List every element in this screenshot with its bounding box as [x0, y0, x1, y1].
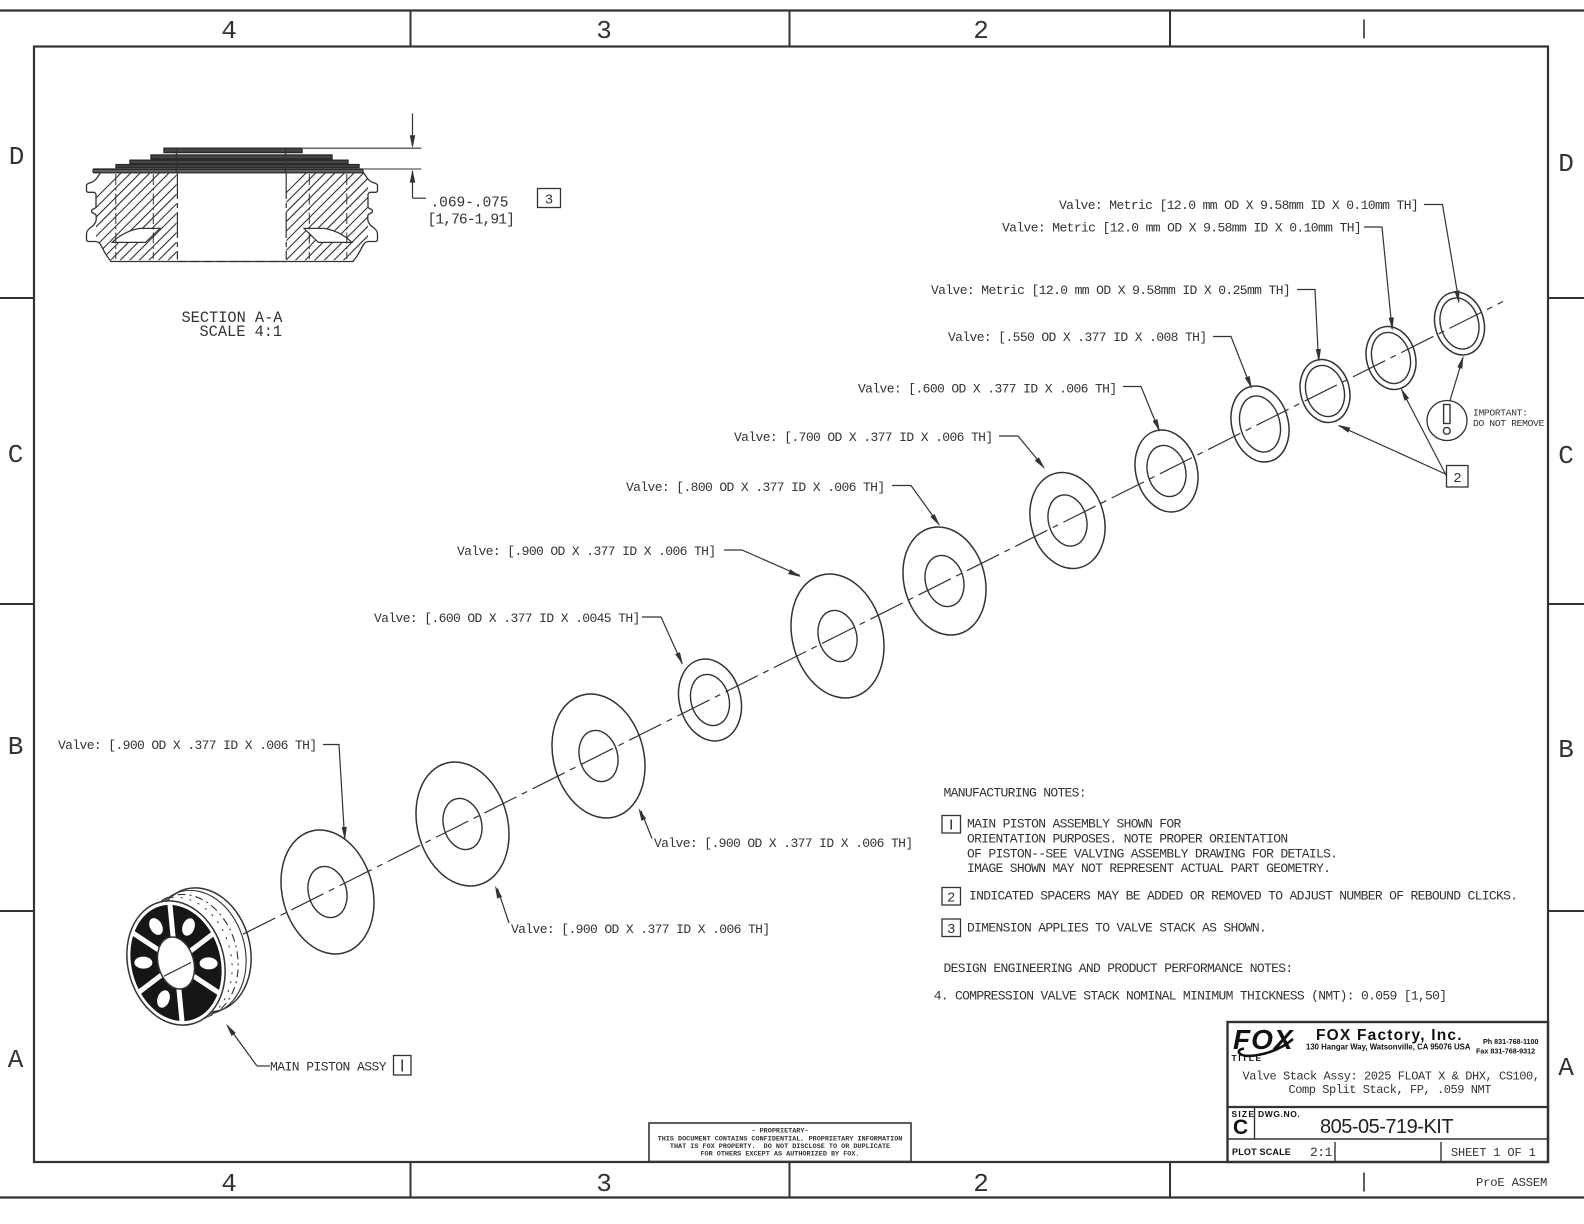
svg-text:Valve: Metric [12.0 mm OD X 9.: Valve: Metric [12.0 mm OD X 9.58mm ID X … — [1059, 198, 1418, 213]
svg-text:3: 3 — [596, 1169, 612, 1199]
svg-text:B: B — [1558, 735, 1574, 765]
svg-text:2: 2 — [1453, 471, 1461, 487]
svg-text:MANUFACTURING NOTES:: MANUFACTURING NOTES: — [944, 786, 1086, 801]
svg-text:.069-.075: .069-.075 — [431, 196, 509, 212]
svg-text:C: C — [1233, 1116, 1248, 1139]
svg-text:Ph 831-768-1100: Ph 831-768-1100 — [1483, 1037, 1539, 1046]
svg-text:Valve: [.900 OD X .377 ID X .0: Valve: [.900 OD X .377 ID X .006 TH] — [457, 544, 716, 559]
svg-text:DIMENSION APPLIES TO VALVE STA: DIMENSION APPLIES TO VALVE STACK AS SHOW… — [967, 921, 1266, 936]
svg-text:2: 2 — [973, 16, 989, 46]
svg-text:Valve: [.900 OD X .377 ID X .0: Valve: [.900 OD X .377 ID X .006 TH] — [654, 836, 913, 851]
svg-text:3: 3 — [947, 922, 955, 938]
svg-text:- PROPRIETARY-: - PROPRIETARY- — [751, 1128, 808, 1136]
svg-text:ProE ASSEM: ProE ASSEM — [1476, 1176, 1547, 1190]
svg-text:Valve: [.600 OD X .377 ID X .0: Valve: [.600 OD X .377 ID X .006 TH] — [858, 382, 1117, 397]
svg-text:INDICATED SPACERS MAY BE ADDED: INDICATED SPACERS MAY BE ADDED OR REMOVE… — [969, 889, 1517, 904]
svg-text:Valve: [.900 OD X .377 ID X .0: Valve: [.900 OD X .377 ID X .006 TH] — [511, 922, 770, 937]
svg-text:Valve: [.800 OD X .377 ID X .0: Valve: [.800 OD X .377 ID X .006 TH] — [626, 480, 885, 495]
svg-text:2: 2 — [947, 891, 955, 907]
svg-text:B: B — [8, 732, 24, 762]
svg-text:Valve: [.550 OD X .377 ID X .0: Valve: [.550 OD X .377 ID X .008 TH] — [948, 330, 1207, 345]
svg-text:MAIN PISTON ASSY: MAIN PISTON ASSY — [270, 1060, 387, 1075]
svg-text:FOX Factory, Inc.: FOX Factory, Inc. — [1316, 1027, 1463, 1044]
svg-text:SHEET 1 OF 1: SHEET 1 OF 1 — [1451, 1146, 1536, 1160]
svg-text:MAIN PISTON ASSEMBLY SHOWN FOR: MAIN PISTON ASSEMBLY SHOWN FOR — [967, 817, 1182, 832]
svg-text:805-05-719-KIT: 805-05-719-KIT — [1320, 1116, 1453, 1138]
svg-text:[1,76-1,91]: [1,76-1,91] — [428, 213, 514, 229]
svg-text:OF PISTON--SEE VALVING ASSEMBL: OF PISTON--SEE VALVING ASSEMBLY DRAWING … — [967, 847, 1337, 862]
svg-text:SCALE 4:1: SCALE 4:1 — [200, 323, 283, 341]
svg-text:TITLE: TITLE — [1232, 1053, 1263, 1063]
svg-text:3: 3 — [545, 193, 553, 209]
svg-text:DESIGN ENGINEERING AND PRODUCT: DESIGN ENGINEERING AND PRODUCT PERFORMAN… — [944, 961, 1293, 976]
svg-text:130 Hangar Way, Watsonville, C: 130 Hangar Way, Watsonville, CA 95076 US… — [1306, 1043, 1471, 1052]
svg-text:ORIENTATION PURPOSES. NOTE PRO: ORIENTATION PURPOSES. NOTE PROPER ORIENT… — [967, 832, 1287, 847]
svg-text:Valve Stack Assy: 2025 FLOAT X: Valve Stack Assy: 2025 FLOAT X & DHX, CS… — [1243, 1070, 1540, 1084]
svg-text:4: 4 — [221, 1169, 237, 1199]
svg-text:PLOT SCALE: PLOT SCALE — [1232, 1147, 1291, 1157]
svg-text:FOR OTHERS EXCEPT AS AUTHORIZE: FOR OTHERS EXCEPT AS AUTHORIZED BY FOX. — [700, 1151, 859, 1159]
svg-text:Valve: [.900 OD X .377 ID X .0: Valve: [.900 OD X .377 ID X .006 TH] — [58, 738, 317, 753]
svg-text:Valve: [.700 OD X .377 ID X .0: Valve: [.700 OD X .377 ID X .006 TH] — [734, 430, 993, 445]
svg-text:3: 3 — [596, 16, 612, 46]
svg-text:4: 4 — [221, 16, 237, 46]
svg-text:IMPORTANT:: IMPORTANT: — [1473, 408, 1528, 419]
svg-text:IMAGE SHOWN MAY NOT REPRESENT: IMAGE SHOWN MAY NOT REPRESENT ACTUAL PAR… — [967, 861, 1330, 876]
svg-text:Fax 831-768-9312: Fax 831-768-9312 — [1476, 1047, 1535, 1056]
svg-text:C: C — [8, 440, 24, 470]
svg-text:DWG.NO.: DWG.NO. — [1258, 1109, 1300, 1119]
svg-text:D: D — [1558, 149, 1574, 179]
svg-text:2:1: 2:1 — [1310, 1145, 1333, 1160]
svg-text:D: D — [9, 142, 25, 172]
svg-text:Comp Split Stack, FP, .059 NMT: Comp Split Stack, FP, .059 NMT — [1289, 1083, 1492, 1097]
svg-text:A: A — [8, 1045, 24, 1075]
svg-text:4. COMPRESSION VALVE STACK NOM: 4. COMPRESSION VALVE STACK NOMINAL MINIM… — [934, 989, 1447, 1004]
svg-text:FOX: FOX — [1233, 1024, 1295, 1055]
svg-text:C: C — [1558, 441, 1574, 471]
svg-text:Valve: Metric [12.0 mm OD X 9.: Valve: Metric [12.0 mm OD X 9.58mm ID X … — [931, 283, 1290, 298]
svg-text:A: A — [1558, 1053, 1574, 1083]
svg-text:DO NOT REMOVE: DO NOT REMOVE — [1473, 418, 1544, 429]
svg-text:Valve: [.600 OD X .377 ID X .0: Valve: [.600 OD X .377 ID X .0045 TH] — [374, 611, 640, 626]
svg-text:2: 2 — [973, 1169, 989, 1199]
svg-text:Valve: Metric [12.0 mm OD X 9.: Valve: Metric [12.0 mm OD X 9.58mm ID X … — [1002, 221, 1361, 236]
